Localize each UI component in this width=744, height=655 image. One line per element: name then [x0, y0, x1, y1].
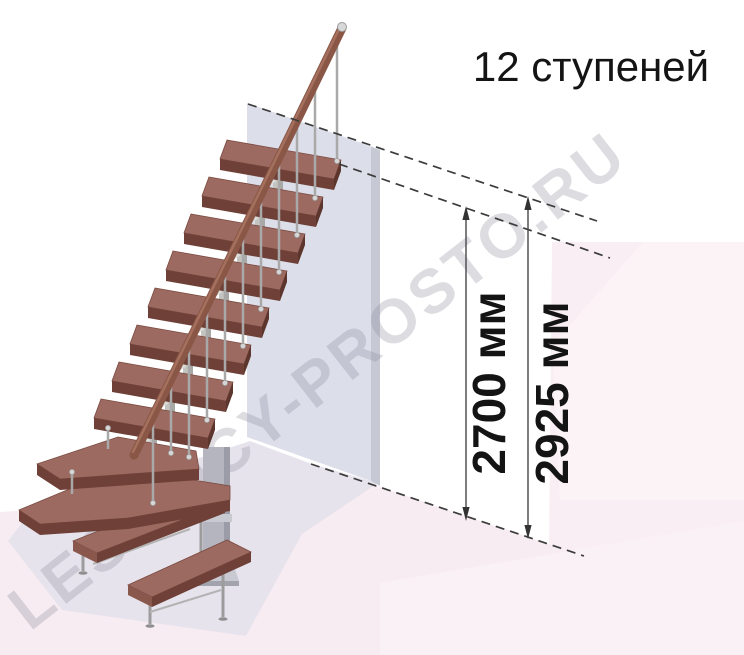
handrail-end-cap [338, 23, 347, 32]
dimension-inner-label: 2700 мм [463, 291, 515, 474]
staircase-dimension-diagram: LESTNICY-PROSTO.RU [0, 0, 744, 655]
diagram-canvas: LESTNICY-PROSTO.RU [0, 0, 744, 655]
diagram-title: 12 ступеней [473, 43, 709, 90]
dimension-outer-label: 2925 мм [526, 301, 578, 484]
